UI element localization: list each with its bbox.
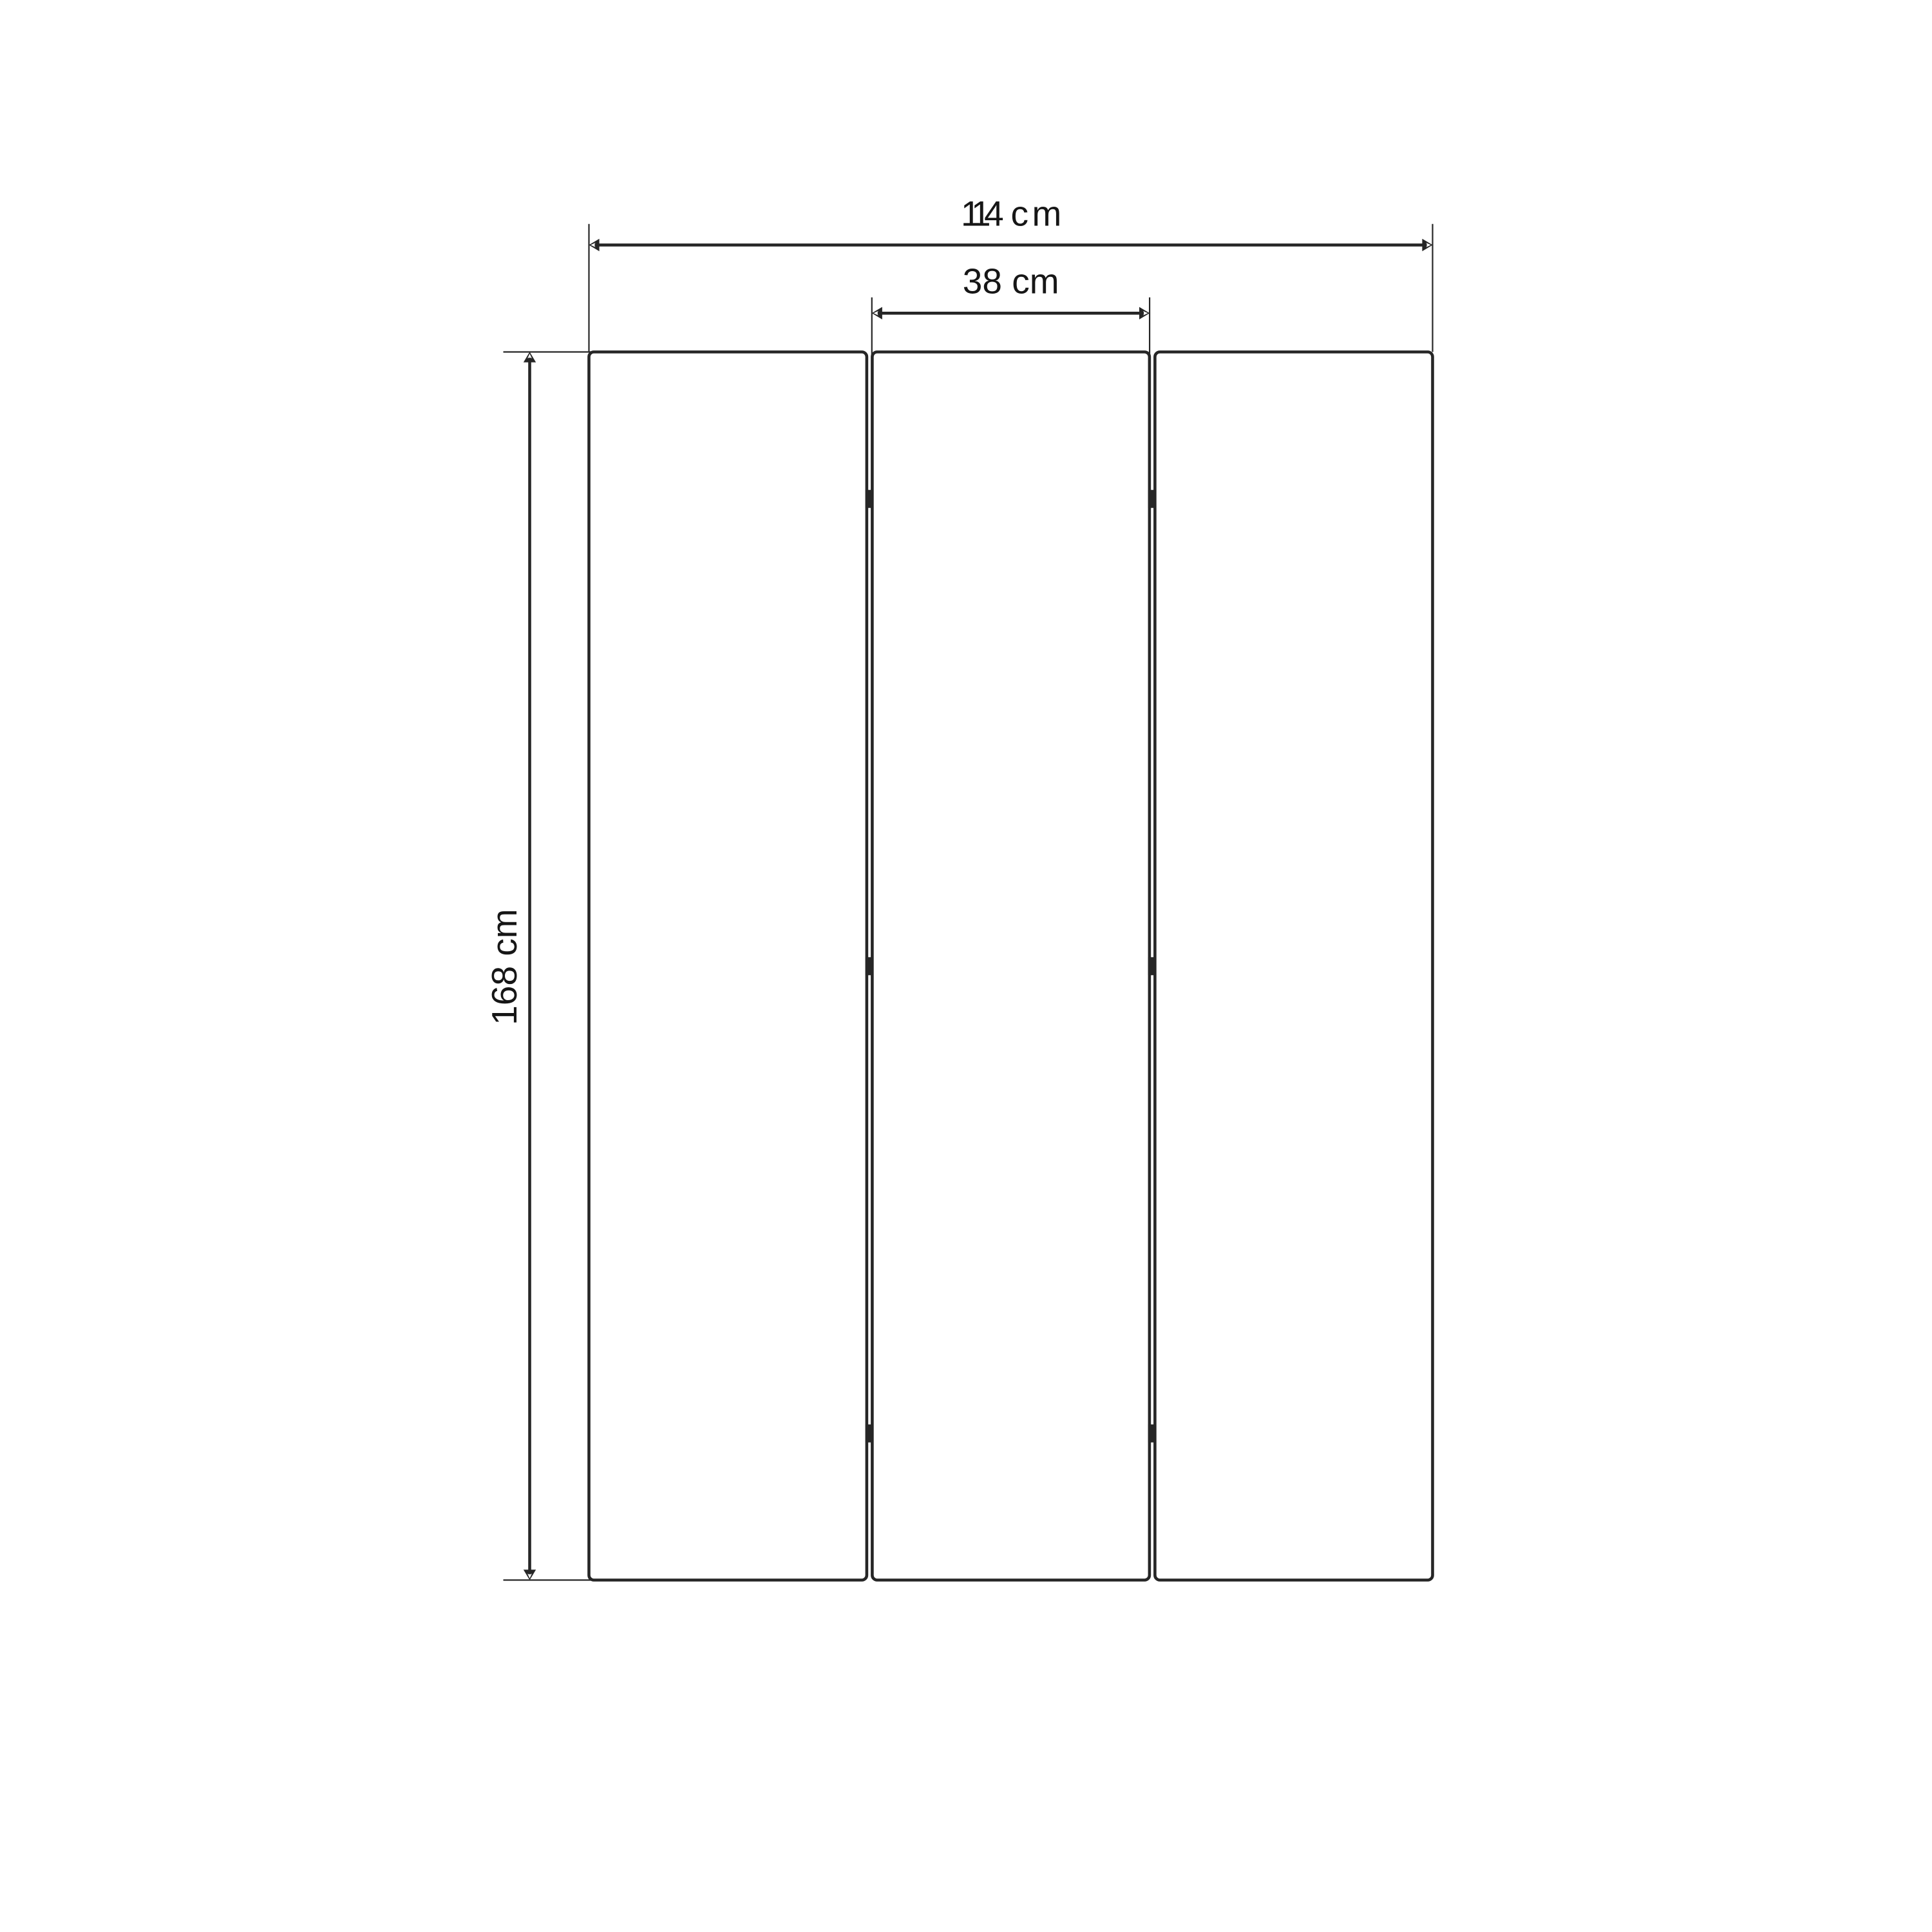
svg-text:168 cm: 168 cm bbox=[484, 909, 524, 1025]
svg-text:114 cm: 114 cm bbox=[961, 194, 1065, 234]
svg-text:38 cm: 38 cm bbox=[963, 261, 1059, 301]
